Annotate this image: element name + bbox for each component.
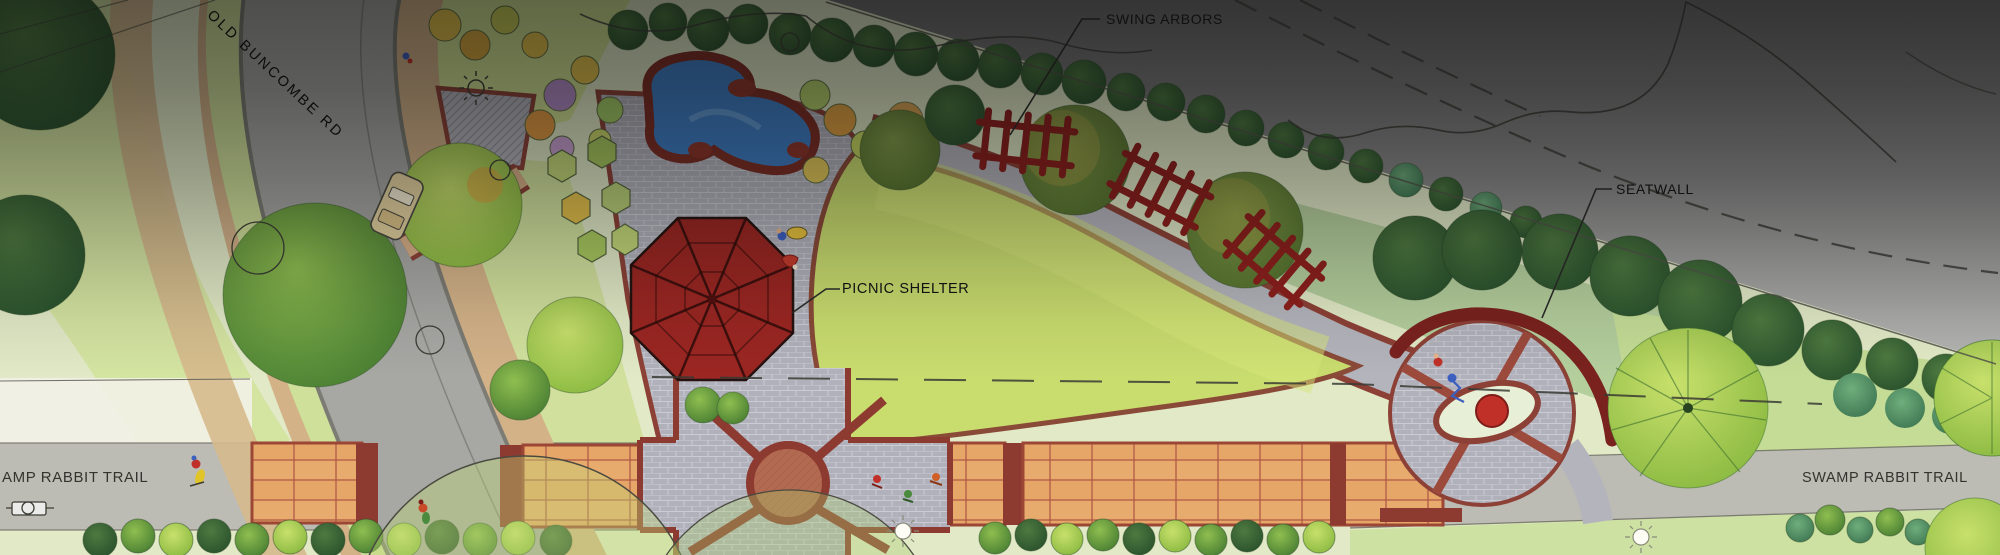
label-swing-arbors: SWING ARBORS [1106,12,1223,26]
site-plan-hero: OLD BUNCOMBE RD SWING ARBORS SEATWALL PI… [0,0,2000,555]
label-picnic-shelter: PICNIC SHELTER [842,282,969,297]
site-plan-canvas [0,0,2000,555]
label-swamp-rabbit-trail-right: SWAMP RABBIT TRAIL [1802,471,1968,486]
label-seatwall: SEATWALL [1616,182,1694,196]
canopy-sketch-right [1288,2,1896,162]
red-shrub [1476,395,1508,427]
picnic-shelter [631,218,793,380]
label-swamp-rabbit-trail-left: AMP RABBIT TRAIL [2,470,148,485]
